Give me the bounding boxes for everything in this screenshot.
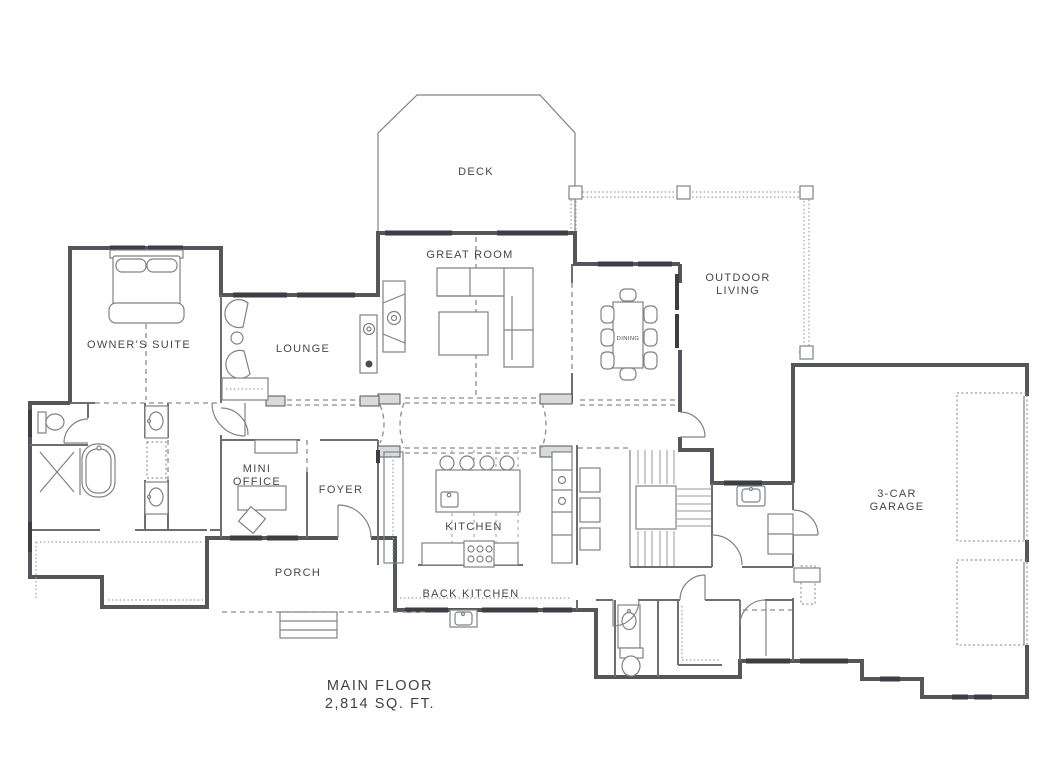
- bed-symbol: [109, 250, 184, 323]
- post-icon: [800, 346, 813, 359]
- sectional-sofa-symbol: [437, 268, 533, 367]
- mudroom-door-swing: [712, 535, 742, 565]
- dining-set-symbol: [601, 289, 657, 380]
- room-label-outdoor-living-2: LIVING: [716, 285, 760, 297]
- room-label-garage-1: 3-CAR: [877, 488, 917, 500]
- hall-door-swing: [212, 403, 245, 436]
- room-label-mini-office-1: MINI: [243, 463, 271, 475]
- hall-cabinets-symbol: [580, 468, 600, 550]
- butler-cabinets-symbol: [552, 452, 572, 563]
- locker-symbol: [768, 534, 793, 554]
- room-label-dining: DINING: [617, 336, 640, 342]
- cabinet-symbol: [255, 440, 297, 453]
- side-table-symbol: [231, 332, 243, 344]
- room-label-back-kitchen: BACK KITCHEN: [423, 588, 520, 600]
- powder-room-symbols: [618, 605, 643, 676]
- mudroom-symbols: [737, 486, 793, 554]
- toilet-symbol: [38, 412, 46, 433]
- garage-step-symbol: [794, 568, 820, 582]
- room-label-mini-office-2: OFFICE: [233, 476, 281, 488]
- coat-closet-door-swing: [740, 600, 765, 625]
- back-kitchen-sink-symbol: [450, 610, 477, 627]
- room-label-lounge: LOUNGE: [276, 343, 330, 355]
- room-label-great-room: GREAT ROOM: [426, 249, 513, 261]
- room-label-kitchen: KITCHEN: [445, 521, 502, 533]
- room-label-owners-suite: OWNER'S SUITE: [87, 339, 191, 351]
- owners-bath-symbols: [38, 406, 168, 514]
- desk-symbol: [238, 486, 286, 510]
- range-counter-symbol: [422, 541, 518, 567]
- lounge-furniture: [222, 300, 268, 400]
- plan-title-line1: MAIN FLOOR: [327, 678, 433, 694]
- porch-steps-symbol: [280, 612, 337, 638]
- locker-symbol: [768, 514, 793, 534]
- office-hall-door-swing: [221, 408, 248, 435]
- room-label-outdoor-living-1: OUTDOOR: [705, 272, 770, 284]
- chair-symbol: [239, 507, 266, 534]
- armchair-symbol: [225, 300, 248, 328]
- ottoman-symbol: [439, 312, 488, 355]
- deck-outline: [378, 95, 575, 231]
- floor-plan-canvas: DECK GREAT ROOM OUTDOOR LIVING OWNER'S S…: [0, 0, 1062, 759]
- staircase: [630, 450, 711, 567]
- post-icon: [569, 186, 582, 199]
- kitchen-island-symbol: [436, 456, 520, 512]
- armchair-symbol: [226, 350, 250, 378]
- shower-symbol: [40, 452, 74, 492]
- plan-title: MAIN FLOOR 2,814 SQ. FT.: [325, 678, 435, 712]
- garage-car-bays: [957, 393, 1027, 645]
- plan-title-line2: 2,814 SQ. FT.: [325, 696, 435, 712]
- room-label-garage-2: GARAGE: [870, 501, 925, 513]
- post-icon: [677, 186, 690, 199]
- wc-door-swing: [64, 419, 88, 443]
- garage-entry-door-swing: [793, 510, 818, 535]
- closet-door-swing: [680, 575, 705, 600]
- front-door-swing: [338, 505, 371, 538]
- post-icon: [800, 186, 813, 199]
- room-label-deck: DECK: [458, 166, 494, 178]
- room-label-foyer: FOYER: [319, 484, 363, 496]
- floor-plan-page: DECK GREAT ROOM OUTDOOR LIVING OWNER'S S…: [0, 0, 1062, 759]
- patio-door-swing: [680, 412, 705, 437]
- room-label-porch: PORCH: [275, 567, 321, 579]
